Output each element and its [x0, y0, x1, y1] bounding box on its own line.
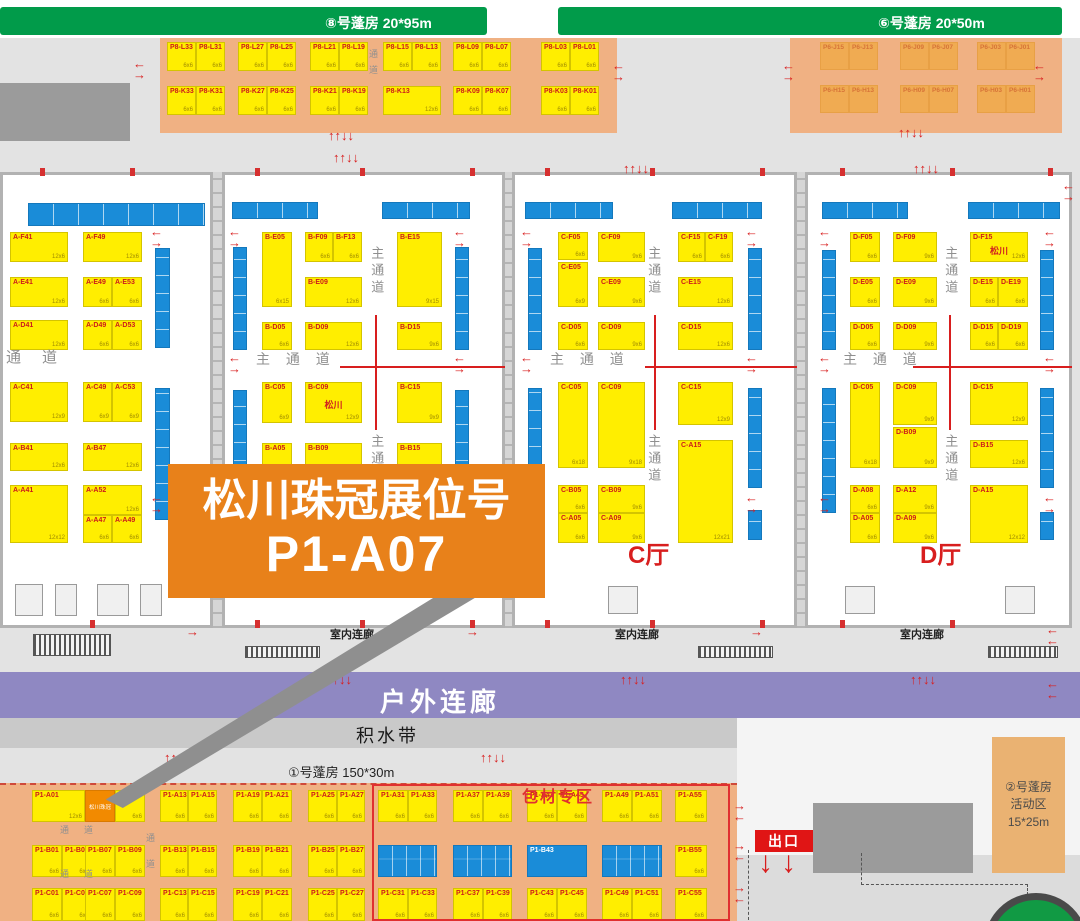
booth-C-C15: C-C1512x9 [678, 382, 733, 425]
booth-P6-H03: P6-H03 [977, 85, 1006, 113]
booth-label: B-C05 [265, 384, 285, 391]
booth-label: D-D09 [896, 324, 916, 331]
booth-P1-C09: P1-C096x6 [115, 888, 145, 921]
booth-P8-L21: P8-L216x6 [310, 42, 339, 71]
direction-arrow-lr: ← → [1043, 492, 1056, 514]
direction-arrow-ud: ↑↑↓↓ [333, 152, 359, 163]
booth-callout: 松川珠冠展位号 P1-A07 [168, 464, 545, 598]
booth-size: 12x6 [52, 254, 65, 260]
booth-D-B09: D-B099x9 [893, 427, 937, 468]
door-mark [470, 168, 475, 176]
booth-label: P1-C51 [635, 890, 659, 897]
booth-P1-C21: P1-C216x6 [262, 888, 292, 921]
booth-size: 6x6 [132, 869, 142, 875]
booth-label: P8-K13 [386, 88, 410, 95]
booth-label: C-A05 [561, 515, 581, 522]
booth-P6-H15: P6-H15 [820, 85, 849, 113]
booth-size: 12x6 [126, 254, 139, 260]
sold-strip-side [1040, 388, 1054, 488]
highlight-booth-text: 松川珠冠 [86, 803, 114, 811]
direction-arrow-lr: ← → [745, 226, 758, 248]
booth-size: 12x6 [52, 342, 65, 348]
booth-label: P1-C43 [530, 890, 554, 897]
door-mark [950, 168, 955, 176]
building-topleft [0, 83, 130, 141]
booth-size: 6x6 [99, 342, 109, 348]
booth-size: 6x6 [175, 869, 185, 875]
booth-D-D19: D-D196x6 [998, 322, 1028, 350]
booth-P6-H13: P6-H13 [849, 85, 878, 113]
booth-label: P8-K21 [313, 88, 337, 95]
booth-P1-C01: P1-C016x6 [32, 888, 62, 921]
booth-C-E05: C-E056x9 [558, 262, 588, 307]
booth-label: C-F15 [681, 234, 700, 241]
booth-label: D-F15 [973, 234, 992, 241]
door-mark [950, 620, 955, 628]
booth-size: 6x6 [204, 913, 214, 919]
booth-label: D-A09 [896, 515, 916, 522]
booth-label: D-E09 [896, 279, 916, 286]
booth-label: P1-A39 [486, 792, 510, 799]
booth-A-B47: A-B4712x6 [83, 443, 142, 471]
booth-B-E05: B-E056x15 [262, 232, 292, 307]
booth-label: P8-K27 [241, 88, 265, 95]
booth-label: P8-L09 [456, 44, 479, 51]
callout-title: 松川珠冠展位号 [168, 476, 545, 527]
map-text: 主通道 [943, 246, 957, 297]
map-text: 主通道 [646, 246, 660, 297]
booth-D-D09: D-D099x6 [893, 322, 937, 350]
map-text: 主 通 道 [550, 352, 630, 367]
door-mark [760, 168, 765, 176]
booth-label: P6-H03 [980, 87, 1002, 94]
map-text: 室内连廊 [900, 629, 944, 641]
booth-sold [602, 845, 662, 877]
booth-B-F09: B-F096x6 [305, 232, 333, 262]
booth-label: C-E05 [561, 264, 581, 271]
booth-A-A41: A-A4112x12 [10, 485, 68, 543]
booth-label: P1-C19 [236, 890, 260, 897]
booth-size: 12x6 [717, 299, 730, 305]
booth-size: 6x6 [352, 869, 362, 875]
booth-P8-K03: P8-K036x6 [541, 86, 570, 115]
direction-arrow-lr: ← → [150, 226, 163, 248]
booth-size: 6x6 [326, 63, 336, 69]
booth-label: P8-L25 [270, 44, 293, 51]
direction-arrow-ud: ↑↑↓↓ [623, 163, 649, 174]
booth-P1-A31: P1-A316x6 [378, 790, 408, 822]
booth-A-D41: A-D4112x6 [10, 320, 68, 350]
booth-size: 6x6 [574, 913, 584, 919]
booth-size: 6x9 [279, 415, 289, 421]
booth-size: 6x6 [499, 913, 509, 919]
booth-size: 6x6 [212, 107, 222, 113]
booth-size: 6x6 [129, 299, 139, 305]
direction-arrow-lr: ← → [133, 58, 146, 80]
booth-P1-C51: P1-C516x6 [632, 888, 662, 921]
booth-size: 12x12 [49, 535, 65, 541]
booth-label: P1-C09 [118, 890, 142, 897]
booth-label: P1-C49 [605, 890, 629, 897]
booth-P8-L19: P8-L196x6 [339, 42, 368, 71]
booth-label: P1-A55 [678, 792, 702, 799]
booth-label: P1-C15 [191, 890, 215, 897]
booth-D-E19: D-E196x6 [998, 277, 1028, 307]
door-mark [1048, 168, 1053, 176]
booth-P8-K13: P8-K1312x6 [383, 86, 441, 115]
direction-arrow-l2: ← ← [1046, 678, 1059, 700]
sold-strip-header [968, 202, 1060, 219]
booth-label: C-A09 [601, 515, 621, 522]
booth-P1-C25: P1-C256x6 [308, 888, 337, 921]
booth-label: P1-A13 [163, 792, 187, 799]
booth-label: D-D19 [1001, 324, 1021, 331]
booth-size: 6x6 [183, 107, 193, 113]
booth-size: 9x6 [632, 535, 642, 541]
booth-size: 6x6 [586, 63, 596, 69]
booth-size: 6x6 [619, 814, 629, 820]
booth-size: 6x6 [498, 63, 508, 69]
booth-size: 9x6 [429, 342, 439, 348]
outdoor-corridor-label: 户外连廊 [380, 682, 500, 719]
booth-P8-L25: P8-L256x6 [267, 42, 296, 71]
direction-arrow-lr: ← → [745, 352, 758, 374]
booth-P1-A25: P1-A256x6 [308, 790, 337, 822]
booth-label: B-F09 [308, 234, 327, 241]
booth-size: 12x6 [1012, 460, 1025, 466]
booth-A-F41: A-F4112x6 [10, 232, 68, 262]
escalator [698, 646, 773, 658]
booth-P1-B01: P1-B016x6 [32, 845, 62, 877]
booth-label: P1-A27 [340, 792, 364, 799]
booth-size: 6x9 [99, 414, 109, 420]
booth-P6-H09: P6-H09 [900, 85, 929, 113]
map-text: 道 [146, 860, 155, 870]
direction-arrow-ud: ↑↑↓↓ [620, 674, 646, 685]
booth-label: P1-C07 [88, 890, 112, 897]
booth-size: 6x6 [1015, 342, 1025, 348]
booth-label: P1-A49 [605, 792, 629, 799]
booth-label: P1-A33 [411, 792, 435, 799]
booth-B-E15: B-E159x15 [397, 232, 442, 307]
booth-size: 9x6 [632, 254, 642, 260]
booth-P1-B25: P1-B256x6 [308, 845, 337, 877]
booth-label: P1-B43 [530, 847, 554, 854]
booth-size: 9x6 [924, 299, 934, 305]
booth-label: P8-K19 [342, 88, 366, 95]
booth-A-C49: A-C496x9 [83, 382, 112, 422]
exit-label: 出口 [768, 833, 800, 849]
booth-size: 6x6 [279, 869, 289, 875]
booth-size: 9x9 [429, 415, 439, 421]
booth-label: P8-L33 [170, 44, 193, 51]
booth-P1-B15: P1-B156x6 [188, 845, 217, 877]
booth-size: 12x12 [1009, 535, 1025, 541]
booth-size: 6x6 [249, 869, 259, 875]
booth-label: P8-L27 [241, 44, 264, 51]
booth-P8-L09: P8-L096x6 [453, 42, 482, 71]
booth-label: C-C09 [601, 384, 621, 391]
booth-P6-J15: P6-J15 [820, 42, 849, 70]
booth-D-D15: D-D156x6 [970, 322, 998, 350]
booth-size: 12x21 [714, 535, 730, 541]
direction-arrow-rl: → ← [733, 800, 746, 822]
direction-arrow-lr: ← → [1033, 60, 1046, 82]
map-text: 通 [60, 826, 69, 836]
booth-label: D-B15 [973, 442, 993, 449]
booth-P8-L31: P8-L316x6 [196, 42, 225, 71]
direction-arrow-lr: ← → [520, 352, 533, 374]
map-text: C厅 [628, 543, 669, 569]
booth-exhibitor-name: 松川 [971, 244, 1027, 257]
booth-size: 12x9 [346, 415, 359, 421]
booth-C-D05: C-D056x6 [558, 322, 588, 350]
direction-arrow-ud: ↑↑↓↓ [913, 163, 939, 174]
booth-P1-C07: P1-C076x6 [85, 888, 115, 921]
booth-C-A15: C-A1512x21 [678, 440, 733, 543]
booth-P1-C19: P1-C196x6 [233, 888, 262, 921]
booth-size: 12x9 [1012, 417, 1025, 423]
booth-P1-B13: P1-B136x6 [160, 845, 188, 877]
booth-C-A05: C-A056x6 [558, 513, 588, 543]
booth-size: 6x6 [204, 869, 214, 875]
door-mark [255, 620, 260, 628]
booth-P8-L15: P8-L156x6 [383, 42, 412, 71]
booth-size: 6x6 [254, 63, 264, 69]
booth-P8-L27: P8-L276x6 [238, 42, 267, 71]
booth-size: 6x6 [324, 913, 334, 919]
booth-P6-J13: P6-J13 [849, 42, 878, 70]
booth-P1-A33: P1-A336x6 [408, 790, 437, 822]
direction-arrow-rl: → ← [733, 840, 746, 862]
direction-arrow-ud: ↑↑↓↓ [898, 127, 924, 138]
sold-strip-header [28, 203, 205, 226]
booth-size: 6x6 [249, 913, 259, 919]
map-text: 主通道 [943, 434, 957, 485]
booth-P8-K21: P8-K216x6 [310, 86, 339, 115]
booth-size: 6x6 [469, 107, 479, 113]
booth-label: D-C05 [853, 384, 873, 391]
booth-size: 6x6 [355, 63, 365, 69]
direction-arrow-lr: ← → [453, 352, 466, 374]
booth-B-D09: B-D0912x6 [305, 322, 362, 350]
booth-label: P8-L15 [386, 44, 409, 51]
map-text: 室内连廊 [615, 629, 659, 641]
booth-label: P1-B07 [88, 847, 112, 854]
booth-label: P8-L07 [485, 44, 508, 51]
direction-arrow-lr: ← → [150, 492, 163, 514]
booth-P6-J01: P6-J01 [1006, 42, 1035, 70]
booth-P8-K07: P8-K076x6 [482, 86, 511, 115]
direction-arrow-lr: ← → [228, 352, 241, 374]
facility-box [15, 584, 43, 616]
booth-label: A-B47 [86, 445, 106, 452]
booth-size: 9x6 [632, 299, 642, 305]
booth-label: P1-A25 [311, 792, 335, 799]
booth-P1-B09: P1-B096x6 [115, 845, 145, 877]
booth-size: 6x6 [395, 913, 405, 919]
booth-label: D-A08 [853, 487, 873, 494]
dashed-line [748, 850, 749, 920]
booth-label: P1-B55 [678, 847, 702, 854]
booth-D-E09: D-E099x6 [893, 277, 937, 307]
booth-D-A12: D-A129x6 [893, 485, 937, 513]
booth-C-C09: C-C099x18 [598, 382, 645, 468]
booth-label: B-C09 [308, 384, 328, 391]
aisle-cross-h [340, 366, 505, 368]
booth-C-F09: C-F099x6 [598, 232, 645, 262]
booth-A-E41: A-E4112x6 [10, 277, 68, 307]
booth-P1-A27: P1-A276x6 [337, 790, 365, 822]
direction-arrow-r1: → [466, 626, 479, 637]
sold-strip-side [748, 388, 762, 488]
booth-label: C-C15 [681, 384, 701, 391]
booth-size: 6x6 [283, 63, 293, 69]
booth-P1-C55: P1-C556x6 [675, 888, 707, 921]
booth-label: D-D05 [853, 324, 873, 331]
booth-size: 6x6 [694, 814, 704, 820]
booth-D-F05: D-F056x6 [850, 232, 880, 262]
booth-P1-A55: P1-A556x6 [675, 790, 707, 822]
booth-label: A-C53 [115, 384, 135, 391]
booth-size: 12x6 [52, 299, 65, 305]
booth-size: 12x6 [425, 107, 438, 113]
booth-D-B15: D-B1512x6 [970, 440, 1028, 468]
booth-P1-B43: P1-B43 [527, 845, 587, 877]
direction-arrow-lr: ← → [782, 60, 795, 82]
booth-size: 12x6 [346, 299, 359, 305]
tent6-bar [558, 7, 1062, 35]
booth-label: B-D09 [308, 324, 328, 331]
aisle-cross-v [375, 315, 377, 430]
booth-size: 6x6 [324, 814, 334, 820]
booth-label: P8-K09 [456, 88, 480, 95]
booth-size: 6x6 [867, 342, 877, 348]
booth-size: 12x9 [717, 417, 730, 423]
booth-label: P1-C37 [456, 890, 480, 897]
booth-size: 12x6 [346, 342, 359, 348]
booth-P8-K31: P8-K316x6 [196, 86, 225, 115]
booth-size: 6x6 [132, 814, 142, 820]
booth-P1-B19: P1-B196x6 [233, 845, 262, 877]
booth-P8-L01: P8-L016x6 [570, 42, 599, 71]
booth-P1-C27: P1-C276x6 [337, 888, 365, 921]
booth-label: A-C49 [86, 384, 106, 391]
sold-strip-side [822, 250, 836, 350]
booth-C-E09: C-E099x6 [598, 277, 645, 307]
booth-P1-A39: P1-A396x6 [483, 790, 512, 822]
booth-size: 6x15 [276, 299, 289, 305]
building-bottom [813, 803, 973, 873]
booth-sold [378, 845, 437, 877]
booth-label: P1-A51 [635, 792, 659, 799]
booth-size: 6x6 [469, 63, 479, 69]
sold-strip-side [1040, 512, 1054, 540]
booth-size: 6x6 [985, 299, 995, 305]
booth-D-C09: D-C099x9 [893, 382, 937, 425]
booth-label: A-E41 [13, 279, 33, 286]
escalator [245, 646, 320, 658]
booth-label: P1-A15 [191, 792, 215, 799]
map-text: D厅 [920, 543, 961, 569]
packaging-zone-label: 包材专区 [522, 783, 594, 807]
booth-label: P1-A31 [381, 792, 405, 799]
booth-D-E05: D-E056x6 [850, 277, 880, 307]
booth-B-C15: B-C159x9 [397, 382, 442, 423]
aisle-cross-h [645, 366, 797, 368]
booth-size: 6x6 [499, 814, 509, 820]
booth-label: A-F49 [86, 234, 105, 241]
booth-A-F49: A-F4912x6 [83, 232, 142, 262]
booth-label: D-C15 [973, 384, 993, 391]
booth-P8-L03: P8-L036x6 [541, 42, 570, 71]
booth-P6-J07: P6-J07 [929, 42, 958, 70]
booth-label: C-E15 [681, 279, 701, 286]
direction-arrow-lr: ← → [520, 226, 533, 248]
stair-gap [797, 172, 805, 628]
booth-size: 6x6 [204, 814, 214, 820]
booth-label: B-C15 [400, 384, 420, 391]
booth-label: A-A52 [86, 487, 106, 494]
booth-size: 9x6 [632, 505, 642, 511]
booth-size: 12x6 [52, 463, 65, 469]
booth-label: C-D15 [681, 324, 701, 331]
door-mark [840, 168, 845, 176]
booth-label: C-C05 [561, 384, 581, 391]
booth-size: 6x6 [470, 814, 480, 820]
map-text: 道 [369, 66, 378, 76]
booth-label: P6-H13 [852, 87, 874, 94]
booth-size: 6x6 [399, 63, 409, 69]
booth-size: 6x6 [320, 254, 330, 260]
direction-arrow-ud: ↑↑↓↓ [328, 130, 354, 141]
booth-P1-C31: P1-C316x6 [378, 888, 408, 921]
booth-label: P8-K01 [573, 88, 597, 95]
booth-label: A-A49 [115, 517, 135, 524]
booth-label: D-A15 [973, 487, 993, 494]
booth-label: D-A05 [853, 515, 873, 522]
booth-size: 6x6 [867, 299, 877, 305]
booth-label: C-B09 [601, 487, 621, 494]
booth-size: 6x6 [395, 814, 405, 820]
booth-label: P8-K07 [485, 88, 509, 95]
booth-size: 6x6 [985, 342, 995, 348]
booth-D-A08: D-A086x6 [850, 485, 880, 513]
booth-label: C-D09 [601, 324, 621, 331]
booth-C-F05: C-F056x6 [558, 232, 588, 260]
tent2-line3: 15*25m [992, 814, 1065, 831]
booth-B-C05: B-C056x9 [262, 382, 292, 423]
booth-size: 6x6 [279, 342, 289, 348]
booth-A-A52: A-A5212x6 [83, 485, 142, 515]
booth-label: P6-J01 [1009, 44, 1030, 51]
booth-A-D49: A-D496x6 [83, 320, 112, 350]
escalator [33, 634, 111, 656]
tent6-label: ⑥号蓬房 20*50m [878, 13, 985, 33]
booth-P8-K27: P8-K276x6 [238, 86, 267, 115]
booth-C-C05: C-C056x18 [558, 382, 588, 468]
booth-P1-B55: P1-B556x6 [675, 845, 707, 877]
map-text: 通 [369, 50, 378, 60]
tent1-label: ①号蓬房 150*30m [288, 762, 394, 781]
booth-exhibitor-name: 松川 [306, 398, 361, 411]
booth-size: 6x6 [575, 342, 585, 348]
sold-strip-header [232, 202, 318, 219]
direction-arrow-d2: ↓↓ [758, 848, 804, 878]
door-mark [360, 620, 365, 628]
booth-label: P1-C01 [35, 890, 59, 897]
door-mark [40, 168, 45, 176]
